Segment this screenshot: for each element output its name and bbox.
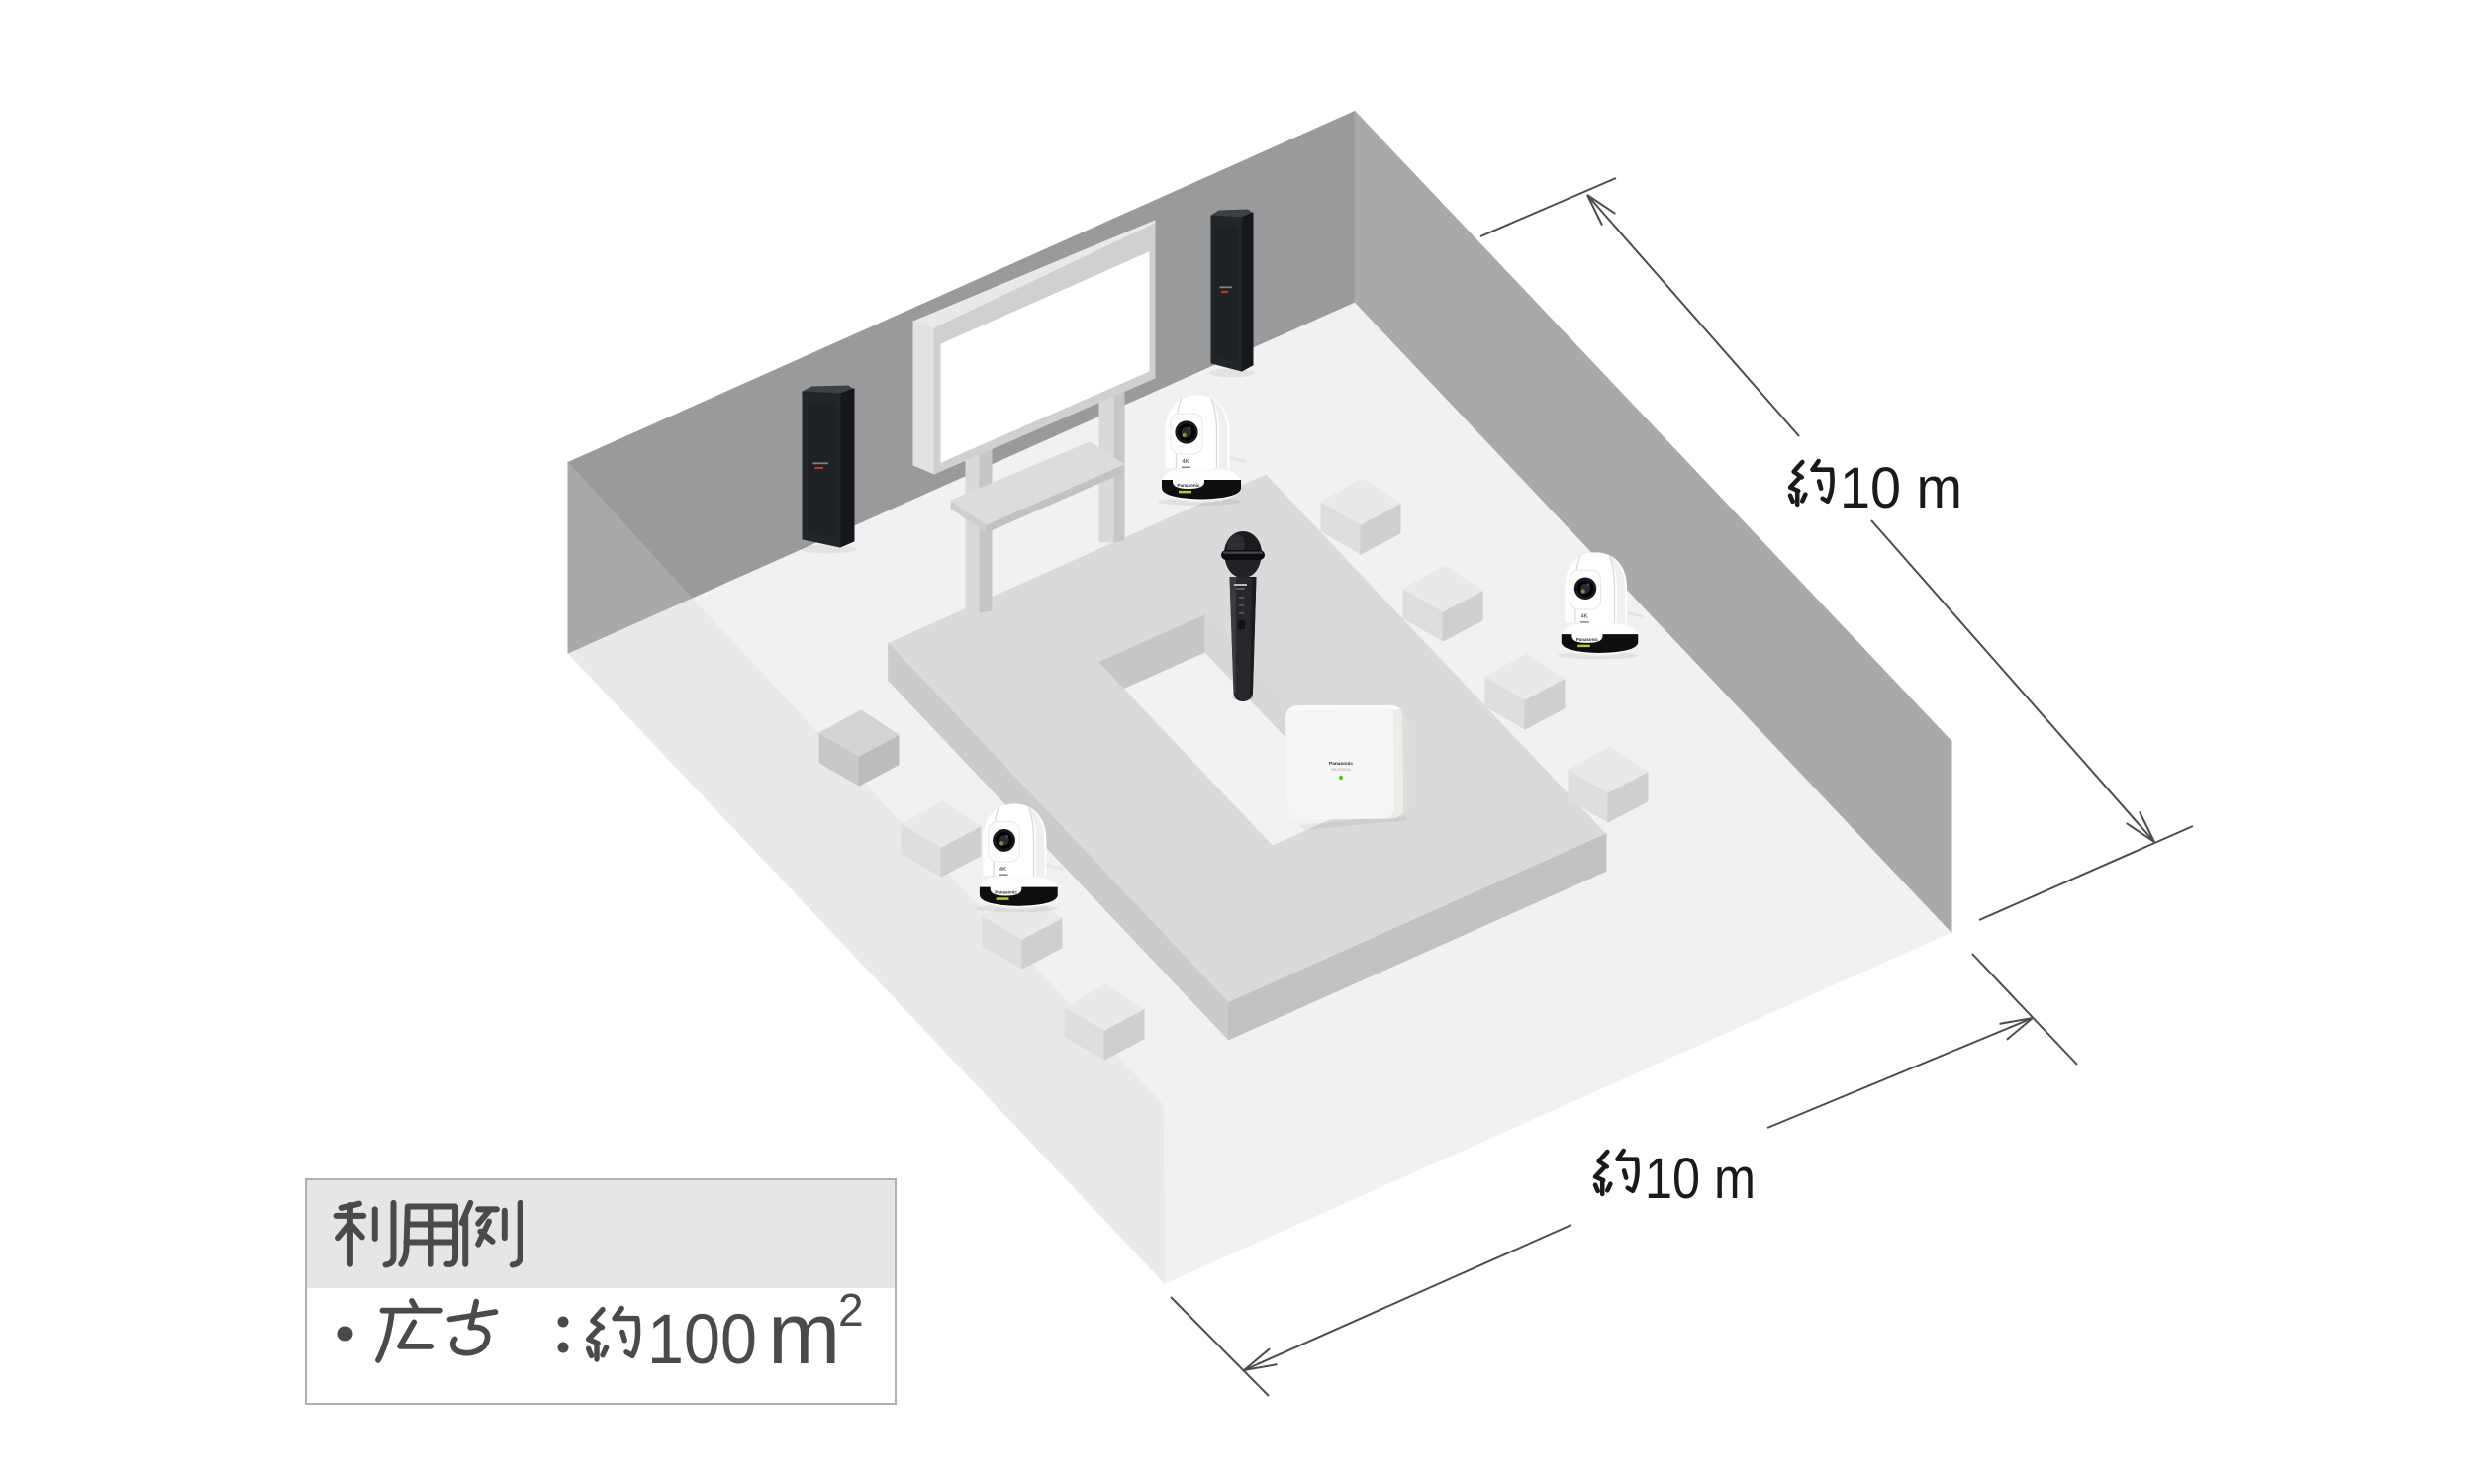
svg-text:Panasonic: Panasonic	[1178, 483, 1200, 488]
svg-text:Panasonic: Panasonic	[1576, 637, 1599, 642]
svg-text:WX-SR202A: WX-SR202A	[1331, 768, 1351, 772]
svg-text:2: 2	[838, 1284, 864, 1336]
svg-text:4K: 4K	[1182, 459, 1189, 465]
svg-text:10 m: 10 m	[1645, 1147, 1756, 1211]
svg-text:Panasonic: Panasonic	[995, 890, 1017, 895]
svg-text:4K: 4K	[1580, 614, 1587, 620]
svg-text:m: m	[768, 1284, 840, 1382]
svg-text:10 m: 10 m	[1840, 456, 1962, 520]
svg-text:4K: 4K	[999, 867, 1007, 873]
svg-text:100: 100	[647, 1301, 757, 1379]
svg-text:Panasonic: Panasonic	[1329, 761, 1353, 767]
